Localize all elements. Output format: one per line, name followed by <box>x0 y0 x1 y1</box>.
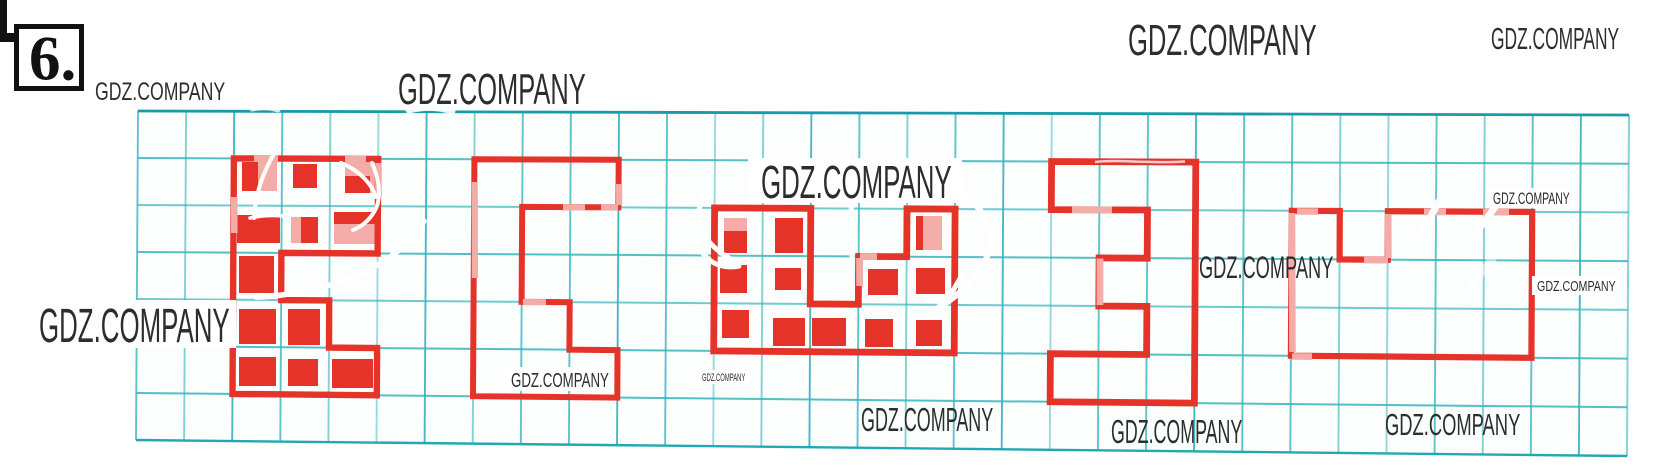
svg-text:GDZ.COMPANY: GDZ.COMPANY <box>1111 413 1242 450</box>
svg-text:6.: 6. <box>29 24 76 94</box>
svg-text:GDZ.COMPANY: GDZ.COMPANY <box>1199 251 1333 285</box>
svg-text:GDZ.COMPANY: GDZ.COMPANY <box>511 368 609 392</box>
svg-text:GDZ.COMPANY: GDZ.COMPANY <box>398 64 586 114</box>
svg-text:GDZ.COMPANY: GDZ.COMPANY <box>761 157 952 209</box>
svg-text:GDZ.COMPANY: GDZ.COMPANY <box>1491 23 1619 56</box>
svg-text:GDZ.COMPANY: GDZ.COMPANY <box>1385 408 1521 442</box>
svg-text:GDZ.COMPANY: GDZ.COMPANY <box>702 371 745 383</box>
svg-text:GDZ.COMPANY: GDZ.COMPANY <box>39 300 230 354</box>
svg-text:GDZ.COMPANY: GDZ.COMPANY <box>1493 190 1570 208</box>
svg-text:GDZ.COMPANY: GDZ.COMPANY <box>95 78 225 106</box>
svg-text:GDZ.COMPANY: GDZ.COMPANY <box>1537 277 1616 294</box>
svg-text:GDZ.COMPANY: GDZ.COMPANY <box>861 401 993 438</box>
svg-text:GDZ.COMPANY: GDZ.COMPANY <box>1128 15 1317 65</box>
